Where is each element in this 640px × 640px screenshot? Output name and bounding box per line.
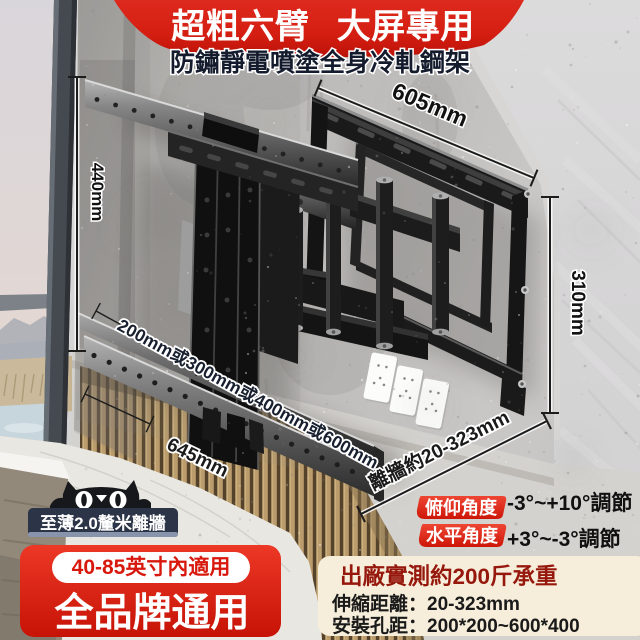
svg-text:伸縮距離：20-323mm: 伸縮距離：20-323mm bbox=[331, 592, 520, 615]
svg-text:俯仰角度: 俯仰角度 bbox=[425, 497, 498, 518]
svg-text:超粗六臂 大屏專用: 超粗六臂 大屏專用 bbox=[171, 8, 474, 46]
svg-text:全品牌通用: 全品牌通用 bbox=[53, 591, 249, 635]
svg-text:-3°~+10°調節: -3°~+10°調節 bbox=[507, 491, 632, 515]
svg-text:310mm: 310mm bbox=[567, 270, 588, 336]
svg-text:至薄2.0釐米離牆: 至薄2.0釐米離牆 bbox=[40, 513, 166, 533]
svg-text:防鏽靜電噴塗全身冷軋鋼架: 防鏽靜電噴塗全身冷軋鋼架 bbox=[170, 48, 470, 77]
svg-text:水平角度: 水平角度 bbox=[426, 525, 499, 546]
svg-text:出廠實測約200斤承重: 出廠實測約200斤承重 bbox=[340, 563, 558, 589]
svg-text:440mm: 440mm bbox=[88, 163, 107, 222]
svg-text:+3°~-3°調節: +3°~-3°調節 bbox=[507, 527, 621, 551]
svg-text:安裝孔距：200*200~600*400: 安裝孔距：200*200~600*400 bbox=[332, 614, 580, 637]
svg-text:40-85英寸內適用: 40-85英寸內適用 bbox=[72, 555, 231, 579]
